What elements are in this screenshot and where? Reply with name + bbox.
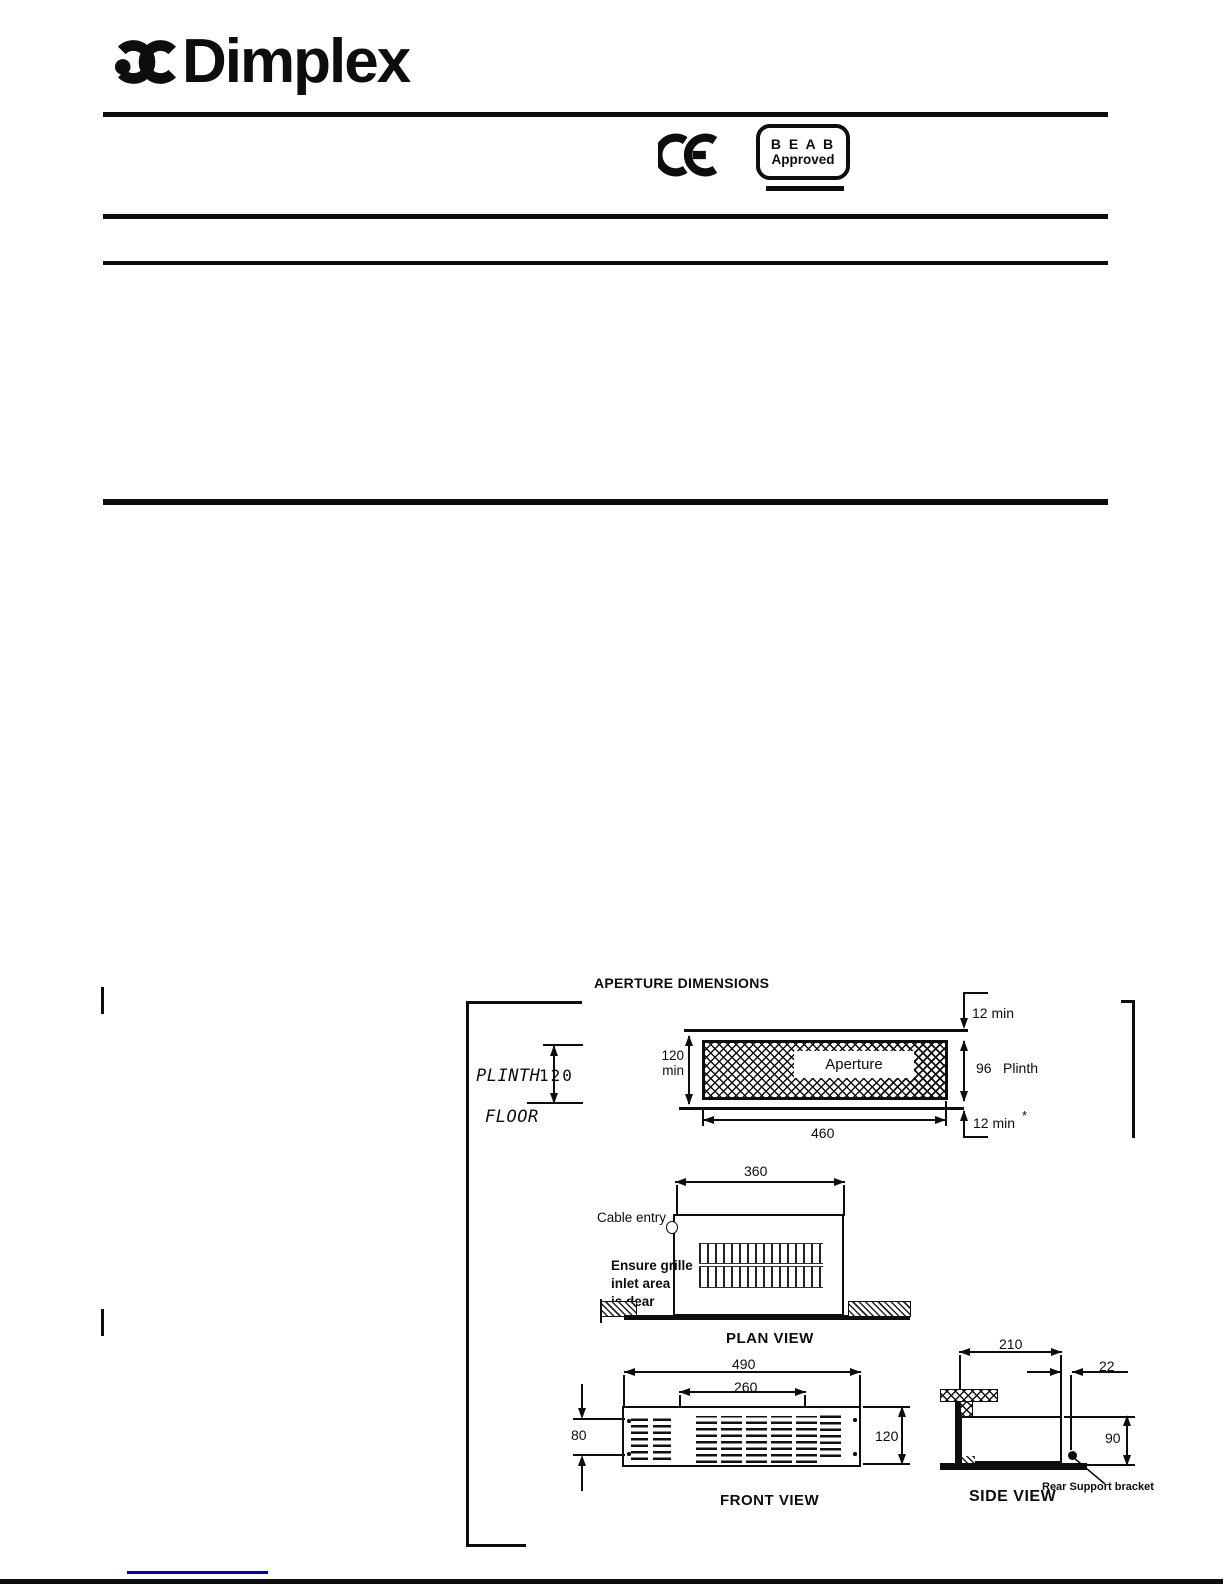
floor-word: FLOOR [485, 1107, 539, 1127]
bracket-label: Rear Support bracket [1042, 1481, 1154, 1493]
arrowhead [703, 1116, 714, 1124]
side-body-outline [960, 1416, 1062, 1463]
document-page: Dimplex B E A B Approved APERTURE DIMENS… [0, 0, 1225, 1585]
side-foot-hatch [962, 1456, 975, 1463]
dim-line [959, 1351, 1062, 1353]
front-grille-center [696, 1416, 819, 1463]
dim-line [581, 1463, 583, 1491]
frame-top-line [466, 1001, 582, 1004]
plan-grille-row [699, 1243, 823, 1264]
dim-bottom-clearance: 12 min [973, 1115, 1015, 1131]
arrowhead [679, 1388, 690, 1396]
dim-top-clearance: 12 min [972, 1005, 1014, 1021]
brand-wordmark: Dimplex [182, 26, 409, 97]
beab-line2: Approved [771, 152, 834, 168]
dim-line [624, 1371, 861, 1373]
extension-line [676, 1185, 678, 1216]
dim-front-width: 490 [732, 1356, 755, 1372]
arrowhead [685, 1094, 693, 1105]
arrowhead [898, 1406, 906, 1417]
aperture-label-box: Aperture [794, 1051, 914, 1078]
dim-front-height: 120 [875, 1428, 898, 1444]
arrowhead [685, 1035, 693, 1046]
beab-underline [766, 186, 844, 191]
dim-grille-height: 80 [571, 1427, 587, 1443]
screw-dot [853, 1418, 857, 1422]
extension-line [843, 1185, 845, 1216]
dim-plan-width: 360 [744, 1163, 767, 1179]
dim-plinth-depth: 96 [976, 1060, 992, 1076]
dim-line [679, 1391, 806, 1393]
dim-tick [963, 992, 988, 994]
arrowhead [960, 1018, 968, 1029]
plinth-top-tick [543, 1044, 583, 1046]
extension-line [863, 1406, 910, 1408]
frame-right-line [1132, 1000, 1135, 1138]
extension-line [863, 1463, 910, 1465]
footnote-asterisk: * [1022, 1108, 1027, 1123]
rule-2 [103, 214, 1108, 219]
arrowhead [935, 1116, 946, 1124]
extension-line [623, 1375, 625, 1406]
arrowhead [960, 1040, 968, 1051]
dim-aperture-height: 120 min [652, 1048, 684, 1078]
dim-line [675, 1181, 845, 1183]
frame-left-line [466, 1001, 469, 1547]
wall-hatch-right [848, 1301, 911, 1317]
plan-grille-row [699, 1266, 823, 1288]
dim-tick [963, 1136, 988, 1138]
dim-aperture-width: 460 [811, 1125, 834, 1141]
footer-link-underline[interactable] [127, 1571, 268, 1574]
screw-dot [853, 1452, 857, 1456]
change-bar [101, 987, 104, 1014]
front-grille-left [631, 1416, 671, 1460]
screw-dot [627, 1419, 631, 1423]
rule-3 [103, 261, 1108, 265]
screw-dot [627, 1452, 631, 1456]
front-view-label: FRONT VIEW [720, 1492, 819, 1509]
rule-top [103, 112, 1108, 117]
floor-tick [527, 1102, 583, 1104]
rule-4 [103, 499, 1108, 505]
side-view-label: SIDE VIEW [969, 1488, 1056, 1506]
plan-body-outline [673, 1214, 844, 1316]
arrowhead [959, 1348, 970, 1356]
dim-side-height: 90 [1105, 1430, 1121, 1446]
arrowhead [1050, 1368, 1061, 1376]
plinth-height: 120 [539, 1066, 574, 1085]
worktop-line [684, 1029, 968, 1032]
aperture-label: Aperture [825, 1056, 883, 1073]
extension-line [959, 1355, 961, 1390]
arrowhead [960, 1110, 968, 1121]
dimplex-logo-icon [114, 33, 180, 91]
cable-entry-hole [666, 1221, 678, 1234]
extension-line [1070, 1375, 1072, 1450]
change-bar [101, 1309, 104, 1336]
extension-line [859, 1375, 861, 1406]
extension-line [573, 1454, 625, 1456]
plinth-word: PLINTH [476, 1066, 540, 1086]
extension-line [1064, 1416, 1135, 1418]
dim-plinth-word: Plinth [1003, 1060, 1038, 1076]
beab-line1: B E A B [771, 136, 835, 152]
ce-mark-icon [658, 130, 724, 180]
extension-line [573, 1418, 625, 1420]
cable-entry-label: Cable entry [597, 1210, 666, 1225]
side-floor-line [940, 1463, 1087, 1470]
arrowhead [1072, 1368, 1083, 1376]
extension-line [1060, 1355, 1062, 1417]
diagram-title: APERTURE DIMENSIONS [594, 975, 769, 991]
arrowhead [960, 1091, 968, 1102]
dim-line [703, 1119, 946, 1121]
frame-bottom-line [466, 1544, 526, 1547]
front-control-block [820, 1415, 841, 1457]
floor-line-aperture [679, 1107, 964, 1110]
plan-view-label: PLAN VIEW [726, 1330, 814, 1347]
dim-side-depth: 210 [999, 1336, 1022, 1352]
beab-badge: B E A B Approved [756, 124, 850, 180]
arrowhead [624, 1368, 635, 1376]
arrowhead [550, 1045, 558, 1056]
rule-bottom [0, 1579, 1223, 1584]
